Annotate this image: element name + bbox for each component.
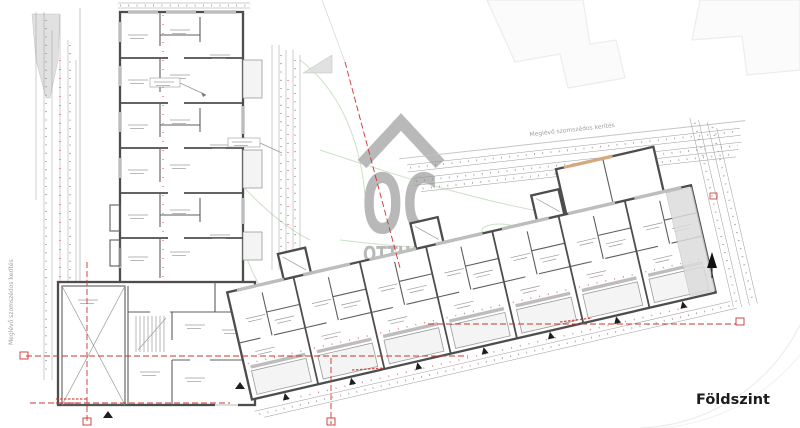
- fence-label-left: Meglévő szomszédos kerítés: [8, 259, 15, 345]
- entrance-marker: [103, 411, 113, 418]
- fence-label-top: Meglévő szomszédos kerítés: [529, 122, 615, 138]
- floorplan-sheet: OC OTTHON CENTRUM: [0, 0, 800, 428]
- left-wing: [110, 12, 262, 285]
- dimension-chains-top: [118, 3, 250, 8]
- section-marker: [20, 352, 28, 359]
- floorplan-canvas: OC OTTHON CENTRUM: [0, 0, 800, 428]
- right-wing: [212, 112, 757, 419]
- ramp-triangle: [303, 55, 332, 73]
- dimension-chains-courtyard: [272, 45, 300, 270]
- balcony: [243, 232, 262, 260]
- balcony: [243, 60, 262, 98]
- balcony: [243, 150, 262, 188]
- entry-block: [58, 282, 255, 405]
- plan-title: Földszint: [696, 392, 770, 408]
- section-marker: [736, 318, 744, 325]
